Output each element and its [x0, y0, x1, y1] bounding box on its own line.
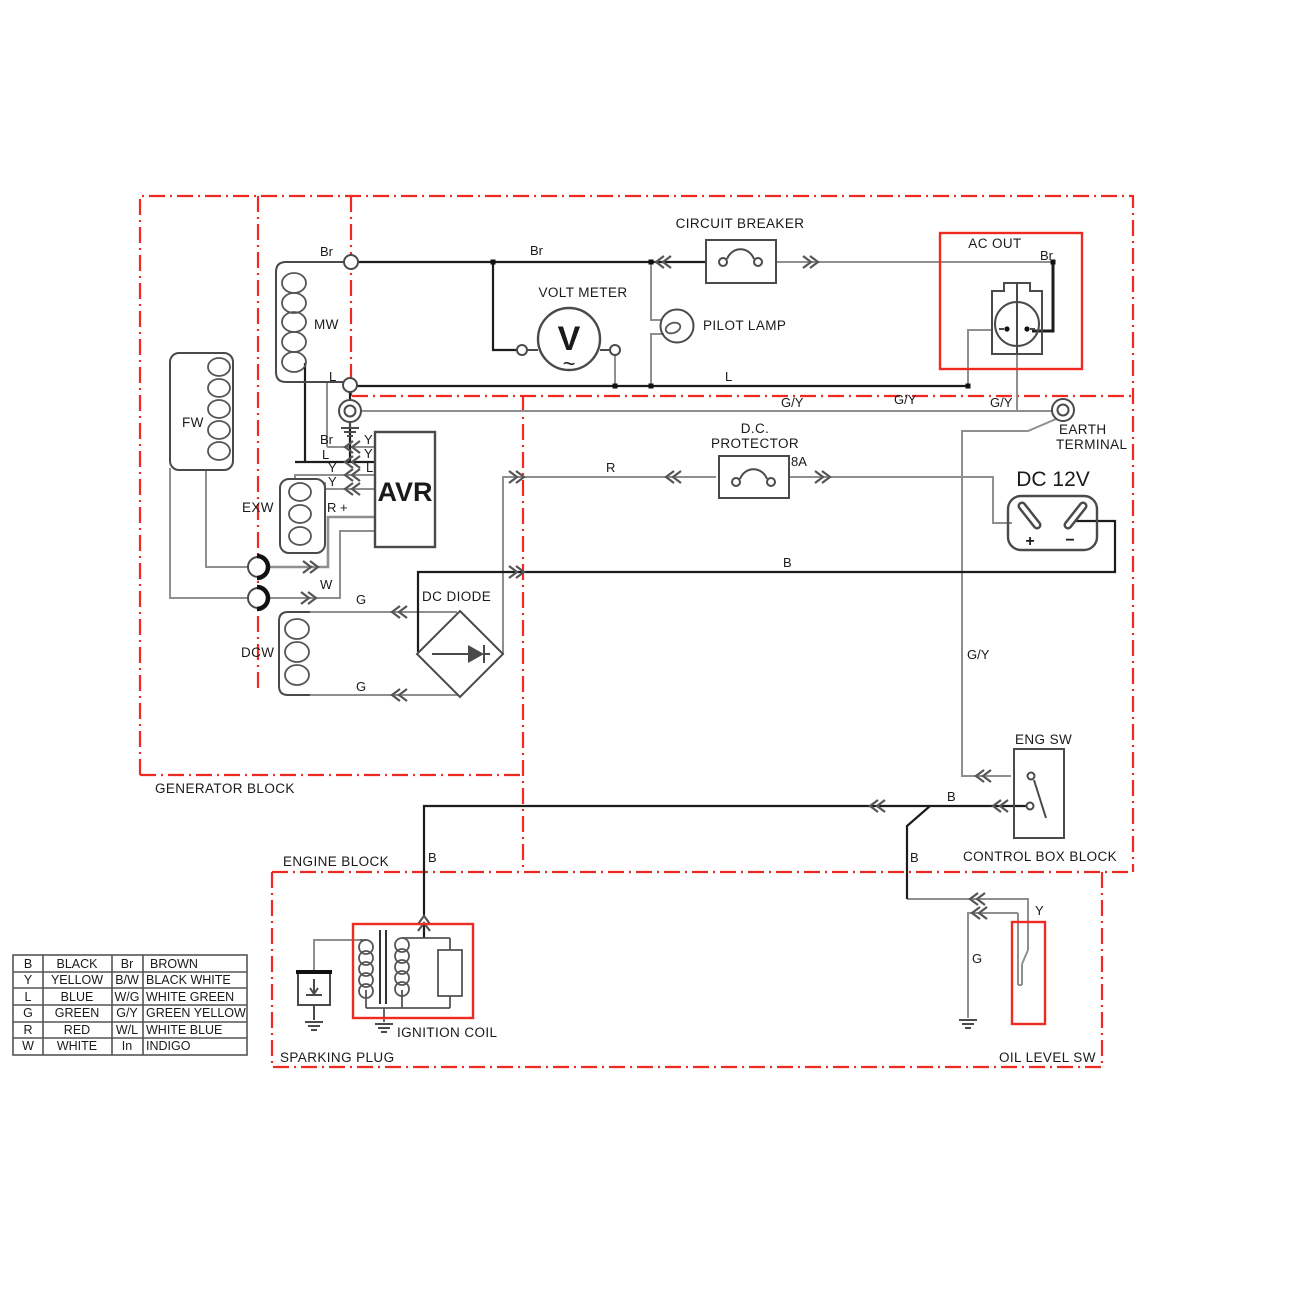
- oil-ground-icon: [959, 1020, 977, 1028]
- ignition-ground-icon: [375, 1024, 393, 1032]
- dcw-winding: [279, 612, 310, 695]
- ac-out-socket: [992, 283, 1042, 354]
- sparking-plug-label: SPARKING PLUG: [280, 1050, 394, 1065]
- svg-text:GREEN YELLOW: GREEN YELLOW: [146, 1006, 246, 1020]
- dc-diode-bridge: [417, 611, 503, 697]
- wire-pilot-top: [651, 262, 662, 320]
- svg-text:Y: Y: [24, 973, 33, 987]
- earth-terminal-label-2: TERMINAL: [1056, 437, 1128, 452]
- wire-label-w: W: [320, 577, 333, 592]
- dc-protector-label-2: PROTECTOR: [711, 436, 799, 451]
- wire-l-to-socket: [968, 330, 992, 386]
- wire-label-rplus: R +: [327, 500, 348, 515]
- svg-text:W: W: [22, 1039, 34, 1053]
- wire-rplus-field: [269, 517, 375, 567]
- svg-text:G/Y: G/Y: [116, 1006, 138, 1020]
- svg-text:W/G: W/G: [115, 990, 140, 1004]
- svg-text:RED: RED: [64, 1023, 90, 1037]
- svg-text:B/W: B/W: [115, 973, 139, 987]
- avr-pin-left-3: Y: [328, 460, 337, 475]
- svg-text:BLACK WHITE: BLACK WHITE: [146, 973, 231, 987]
- circuit-breaker-label: CIRCUIT BREAKER: [676, 216, 805, 231]
- legend-row-2: Y YELLOW B/W BLACK WHITE: [24, 973, 231, 987]
- wire-label-gy-2: G/Y: [894, 392, 917, 407]
- generator-wiring-diagram: GENERATOR BLOCK ENGINE BLOCK CONTROL BOX…: [0, 0, 1308, 1308]
- dcw-label: DCW: [241, 645, 274, 660]
- terminal-l: [343, 378, 357, 392]
- legend-table: B BLACK Br BROWN Y YELLOW B/W BLACK WHIT…: [13, 955, 247, 1055]
- svg-text:GREEN: GREEN: [55, 1006, 99, 1020]
- dc-protector-rating: 8A: [791, 454, 807, 469]
- svg-text:G: G: [23, 1006, 33, 1020]
- wire-pilot-bottom: [651, 334, 664, 386]
- wires-gray: [170, 262, 1056, 1018]
- svg-text:Br: Br: [121, 957, 134, 971]
- svg-text:BLACK: BLACK: [57, 957, 99, 971]
- wire-oil-switch-blade: [1018, 950, 1028, 985]
- avr-label: AVR: [377, 477, 432, 507]
- legend-row-1: B BLACK Br BROWN: [24, 957, 198, 971]
- volt-meter-wave: ~: [563, 351, 576, 376]
- wire-label-y-oil: Y: [1035, 903, 1044, 918]
- wire-label-g-top: G: [356, 592, 366, 607]
- dc-plus-label: +: [1025, 533, 1034, 550]
- svg-text:WHITE: WHITE: [57, 1039, 97, 1053]
- svg-text:BLUE: BLUE: [61, 990, 94, 1004]
- wires-black: [295, 262, 1115, 938]
- exw-label: EXW: [242, 500, 274, 515]
- block-boundaries: [140, 196, 1133, 1067]
- wire-r-to-dc12v: [790, 477, 1012, 523]
- wire-fw-lead2: [170, 468, 247, 598]
- dc-12v-label: DC 12V: [1016, 468, 1090, 491]
- wiring-diagram-page: GENERATOR BLOCK ENGINE BLOCK CONTROL BOX…: [0, 0, 1308, 1308]
- volt-meter-label: VOLT METER: [538, 285, 627, 300]
- wire-voltmeter-left: [493, 262, 517, 350]
- fw-winding: [170, 353, 233, 470]
- ignition-resistor: [438, 950, 462, 996]
- terminal-br: [344, 255, 358, 269]
- svg-text:B: B: [24, 957, 32, 971]
- earth-terminal: [1052, 399, 1074, 421]
- highlight-boxes: [353, 233, 1082, 1024]
- dc-protector-box: [719, 456, 789, 498]
- plug-ground-icon: [305, 1022, 323, 1030]
- ignition-coil-assembly: [359, 930, 462, 1032]
- eng-sw-box: [1014, 749, 1064, 838]
- oil-level-sw-label: OIL LEVEL SW: [999, 1050, 1096, 1065]
- control-box-block-label: CONTROL BOX BLOCK: [963, 849, 1117, 864]
- engine-block-label: ENGINE BLOCK: [283, 854, 389, 869]
- legend-row-5: R RED W/L WHITE BLUE: [23, 1023, 222, 1037]
- wire-label-gy-1: G/Y: [781, 395, 804, 410]
- avr-pin-left-4: Y: [328, 474, 337, 489]
- wire-label-br-generator: Br: [320, 244, 334, 259]
- legend-row-3: L BLUE W/G WHITE GREEN: [25, 990, 235, 1004]
- connector-arrows: [301, 256, 1008, 931]
- svg-text:W/L: W/L: [116, 1023, 138, 1037]
- svg-text:In: In: [122, 1039, 132, 1053]
- wire-label-gy-control: G/Y: [967, 647, 990, 662]
- svg-text:BROWN: BROWN: [150, 957, 198, 971]
- mw-label: MW: [314, 317, 339, 332]
- svg-text:L: L: [25, 990, 32, 1004]
- svg-text:R: R: [23, 1023, 32, 1037]
- pilot-lamp-label: PILOT LAMP: [703, 318, 786, 333]
- eng-sw-label: ENG SW: [1015, 732, 1072, 747]
- svg-text:YELLOW: YELLOW: [51, 973, 103, 987]
- wire-label-b-ignition: B: [428, 850, 437, 865]
- ignition-coil-label: IGNITION COIL: [397, 1025, 498, 1040]
- wire-label-g-oil: G: [972, 951, 982, 966]
- svg-text:WHITE BLUE: WHITE BLUE: [146, 1023, 222, 1037]
- wire-label-l-acout: L: [725, 369, 732, 384]
- exw-winding: [280, 479, 325, 553]
- avr-pin-right-3: L: [366, 460, 373, 475]
- wire-fw-lead1: [206, 470, 247, 567]
- fw-label: FW: [182, 415, 204, 430]
- avr-pin-right-1: Y: [364, 432, 373, 447]
- circuit-breaker-box: [706, 240, 776, 283]
- pilot-lamp: [661, 310, 694, 343]
- ac-out-label: AC OUT: [968, 236, 1021, 251]
- components: [170, 240, 1097, 1032]
- dc-diode-label: DC DIODE: [422, 589, 491, 604]
- wire-label-b-engsw: B: [947, 789, 956, 804]
- wire-label-l-generator: L: [329, 369, 336, 384]
- wire-label-g-bottom: G: [356, 679, 366, 694]
- generator-block-label: GENERATOR BLOCK: [155, 781, 295, 796]
- wire-label-br-breaker: Br: [530, 243, 544, 258]
- labels: GENERATOR BLOCK ENGINE BLOCK CONTROL BOX…: [155, 216, 1128, 1065]
- ignition-primary-coil: [359, 940, 373, 998]
- avr-pin-right-2: Y: [364, 446, 373, 461]
- ac-pin-right: [1024, 326, 1029, 331]
- earth-terminal-label-1: EARTH: [1059, 422, 1107, 437]
- ignition-secondary-coil: [395, 938, 409, 996]
- sparking-plug-symbol: [296, 972, 332, 1030]
- legend-row-4: G GREEN G/Y GREEN YELLOW: [23, 1006, 246, 1020]
- dc-minus-label: −: [1065, 532, 1074, 549]
- dc-protector-label-1: D.C.: [741, 421, 770, 436]
- wire-label-r: R: [606, 460, 615, 475]
- wire-label-b-down: B: [910, 850, 919, 865]
- dc-12v-socket: [1008, 496, 1097, 550]
- svg-text:WHITE GREEN: WHITE GREEN: [146, 990, 234, 1004]
- wire-label-br-acout: Br: [1040, 248, 1054, 263]
- ac-out-highlight: [940, 233, 1082, 369]
- wire-r-main: [503, 477, 716, 654]
- avr-pin-left-1: Br: [320, 432, 334, 447]
- wire-label-gy-3: G/Y: [990, 395, 1013, 410]
- legend-row-6: W WHITE In INDIGO: [22, 1039, 191, 1053]
- ac-pin-left: [1004, 326, 1009, 331]
- svg-text:INDIGO: INDIGO: [146, 1039, 191, 1053]
- wire-label-b-dc: B: [783, 555, 792, 570]
